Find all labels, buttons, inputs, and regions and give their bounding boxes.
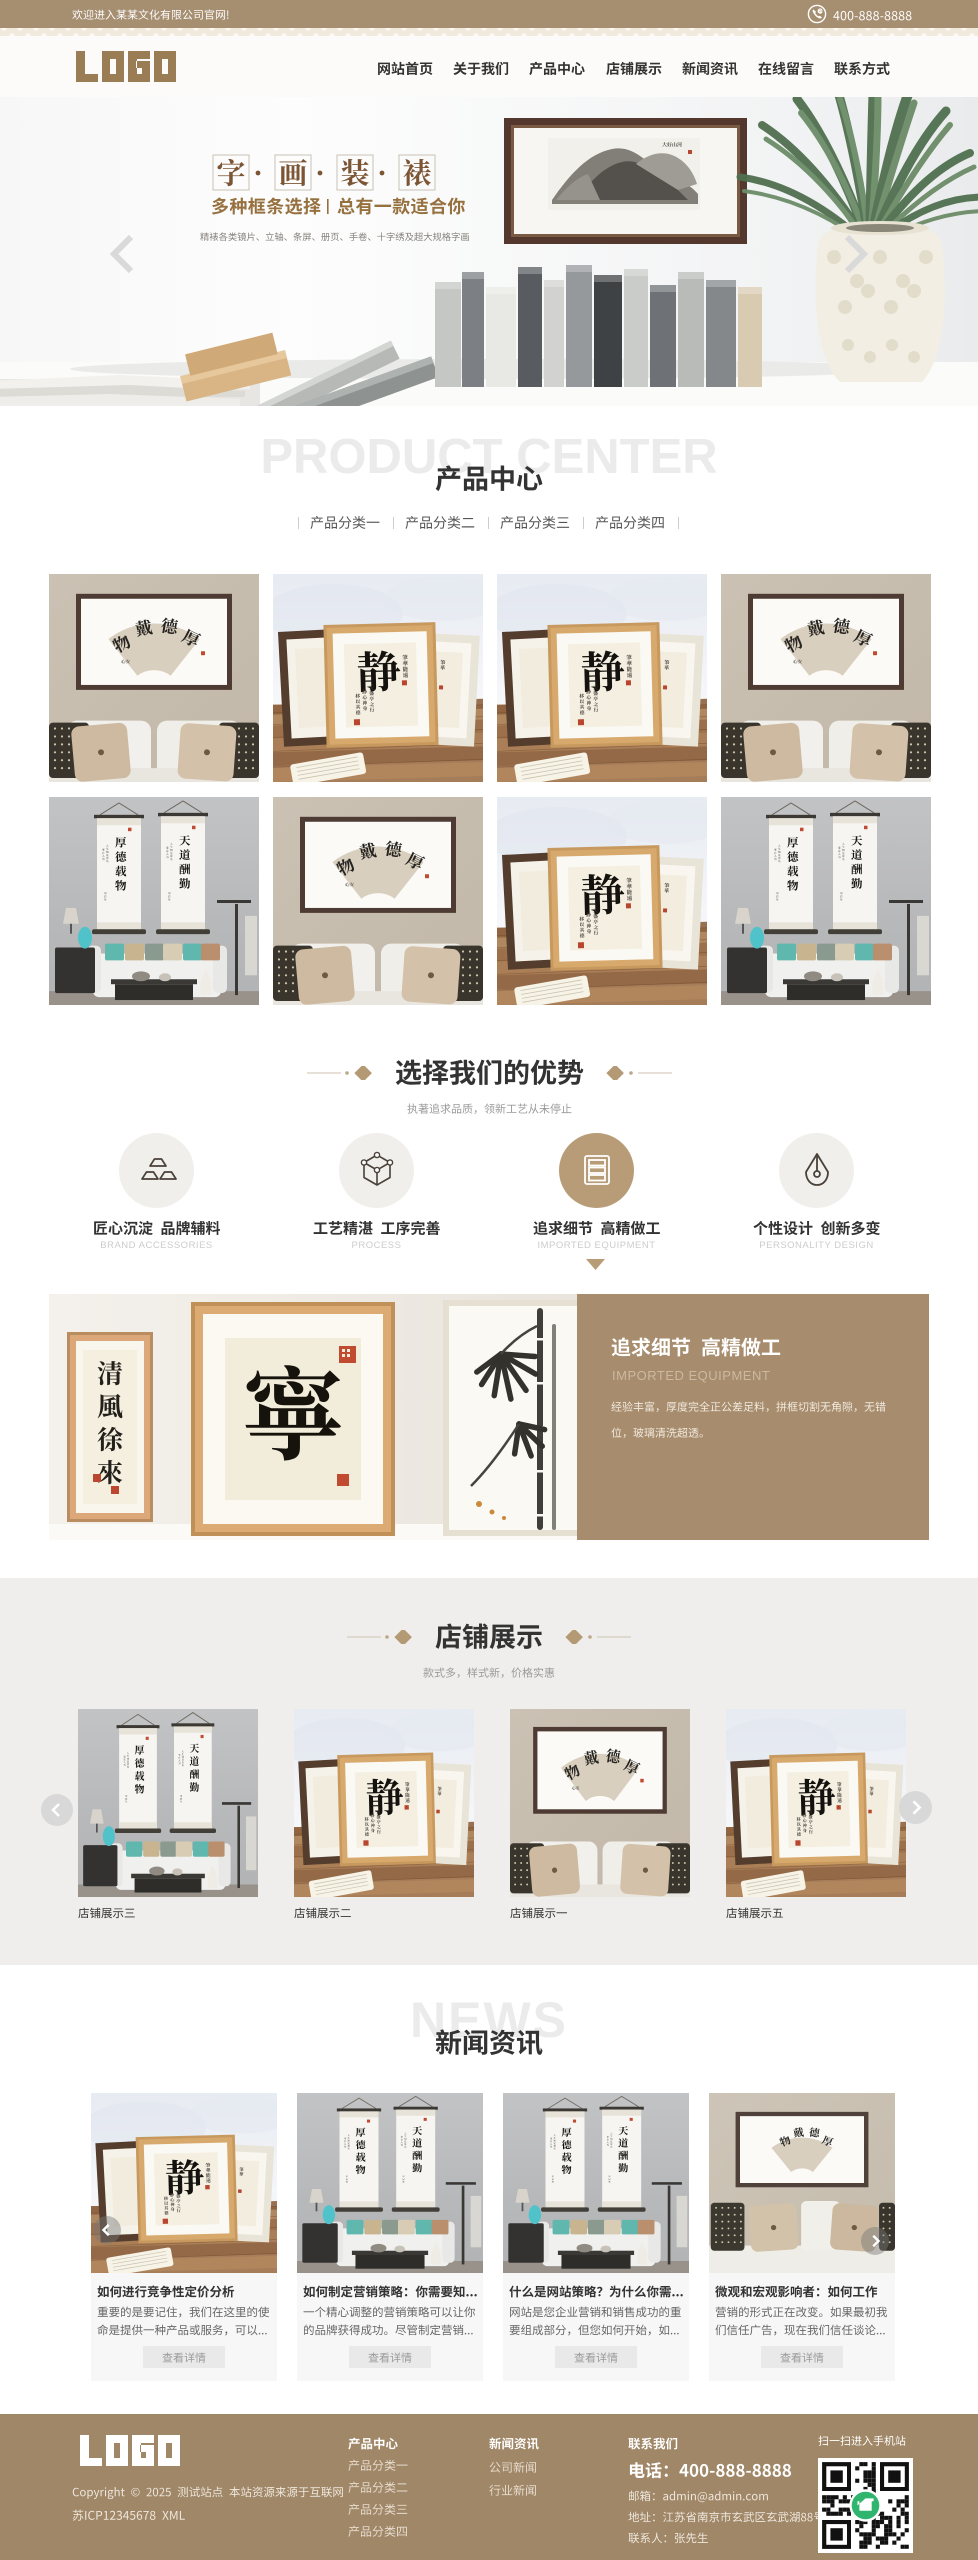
svg-text:24: 24 <box>819 9 823 13</box>
